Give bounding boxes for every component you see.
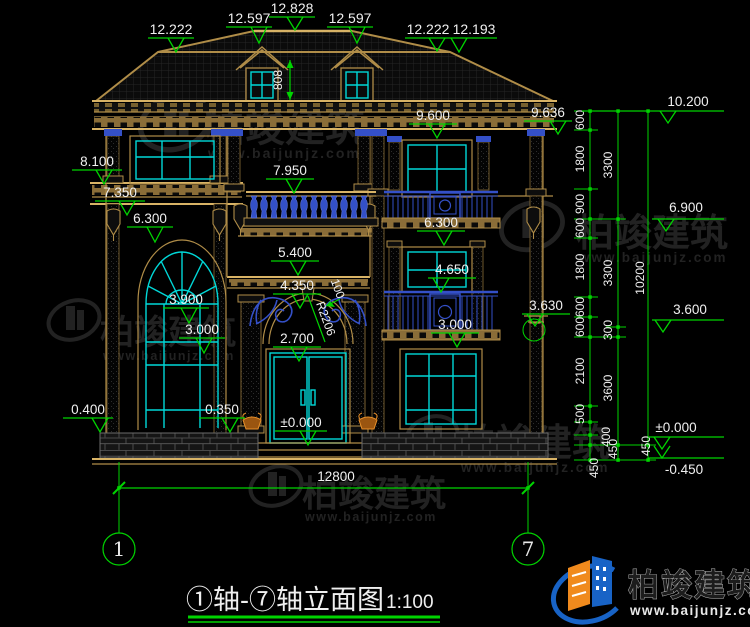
elev-mark: 6.300: [417, 215, 465, 245]
door-handle: [301, 390, 305, 405]
svg-text:±0.000: ±0.000: [280, 415, 321, 430]
title-block: ①轴-⑦轴立面图 1:100: [186, 585, 440, 622]
svg-text:10.200: 10.200: [667, 94, 708, 109]
svg-text:6.300: 6.300: [424, 215, 458, 230]
elev-mark: 7.950: [266, 163, 314, 193]
dim-text: 450: [639, 436, 653, 456]
cornice-bands: [90, 101, 557, 288]
roof: [96, 31, 553, 101]
dim-text: 450: [606, 439, 620, 459]
svg-text:0.350: 0.350: [205, 402, 239, 417]
svg-text:6.900: 6.900: [669, 200, 703, 215]
balustrade-center: [244, 192, 378, 226]
axis-bubble-7: 7: [512, 533, 544, 565]
elev-mark: 5.400: [271, 245, 319, 275]
svg-text:9.636: 9.636: [531, 105, 565, 120]
logo-url-text: www.baijunjz.com: [629, 603, 750, 618]
svg-text:9.600: 9.600: [416, 108, 450, 123]
axis-bubble-1: 1: [103, 533, 135, 565]
dim-text: 3600: [601, 374, 615, 401]
logo-icon: [553, 556, 617, 622]
elev-mark: 6.300: [127, 211, 173, 242]
axis-number: 1: [113, 537, 126, 561]
dim-text: 1800: [573, 145, 587, 172]
svg-text:0.400: 0.400: [71, 402, 105, 417]
svg-text:3.900: 3.900: [169, 292, 203, 307]
dim-text: 600: [573, 317, 587, 337]
svg-text:7.950: 7.950: [273, 163, 307, 178]
elev-mark: 12.193: [451, 21, 497, 52]
elev-mark: 10.200: [582, 94, 724, 123]
dim-text: 808: [271, 70, 285, 90]
dim-text: 3300: [601, 259, 615, 286]
svg-text:12.222: 12.222: [407, 21, 450, 37]
svg-text:12.597: 12.597: [228, 10, 271, 26]
svg-text:6.300: 6.300: [133, 211, 167, 226]
watermark-url-text: www.baijunjz.com: [304, 510, 437, 524]
window-right-3f: [402, 140, 472, 197]
dim-text: 2100: [573, 357, 587, 384]
svg-text:2.700: 2.700: [280, 331, 314, 346]
svg-text:4.650: 4.650: [435, 262, 469, 277]
svg-text:3.600: 3.600: [673, 302, 707, 317]
logo-brand-text: 柏竣建筑: [628, 568, 750, 603]
svg-text:12.222: 12.222: [150, 21, 193, 37]
dim-text: 12800: [317, 469, 355, 484]
svg-text:12.193: 12.193: [453, 21, 496, 37]
elev-mark: ±0.000: [275, 415, 327, 445]
svg-text:-0.450: -0.450: [665, 462, 703, 477]
door-handle: [311, 390, 315, 405]
drawing-title: ①轴-⑦轴立面图: [186, 585, 384, 615]
svg-text:±0.000: ±0.000: [655, 420, 696, 435]
svg-text:8.100: 8.100: [80, 154, 114, 169]
dim-text: 600: [573, 110, 587, 130]
drawing-scale: 1:100: [386, 592, 434, 613]
svg-text:12.597: 12.597: [329, 10, 372, 26]
svg-text:3.000: 3.000: [185, 322, 219, 337]
svg-text:5.400: 5.400: [278, 245, 312, 260]
dim-text: 1800: [573, 253, 587, 280]
cad-elevation-drawing: 柏竣建筑 www.baijunjz.com 柏竣建筑 www.baijunjz.…: [0, 0, 750, 627]
dim-text: 3300: [601, 151, 615, 178]
brand-logo: 柏竣建筑 www.baijunjz.com: [553, 556, 750, 622]
elev-mark: 12.828: [269, 0, 315, 30]
dim-text: 10200: [633, 261, 647, 295]
svg-text:4.350: 4.350: [280, 278, 314, 293]
axis-number: 7: [522, 537, 535, 561]
svg-text:3.630: 3.630: [529, 298, 563, 313]
svg-text:7.350: 7.350: [103, 185, 137, 200]
entry-steps: [246, 443, 376, 457]
dim-text: 300: [601, 320, 615, 340]
drawing-canvas: 柏竣建筑 www.baijunjz.com 柏竣建筑 www.baijunjz.…: [0, 0, 750, 627]
dim-text: 600: [573, 297, 587, 317]
dim-text: 900: [573, 194, 587, 214]
svg-text:3.000: 3.000: [438, 317, 472, 332]
svg-text:12.828: 12.828: [271, 0, 314, 16]
elev-mark: 3.600: [652, 302, 724, 332]
elev-mark: ±0.000: [648, 420, 724, 449]
dim-text: 500: [573, 404, 587, 424]
dim-text: 450: [587, 458, 601, 478]
dim-text: 600: [573, 218, 587, 238]
elev-mark: -0.450: [648, 446, 724, 477]
elev-mark: 3.630: [522, 298, 570, 341]
